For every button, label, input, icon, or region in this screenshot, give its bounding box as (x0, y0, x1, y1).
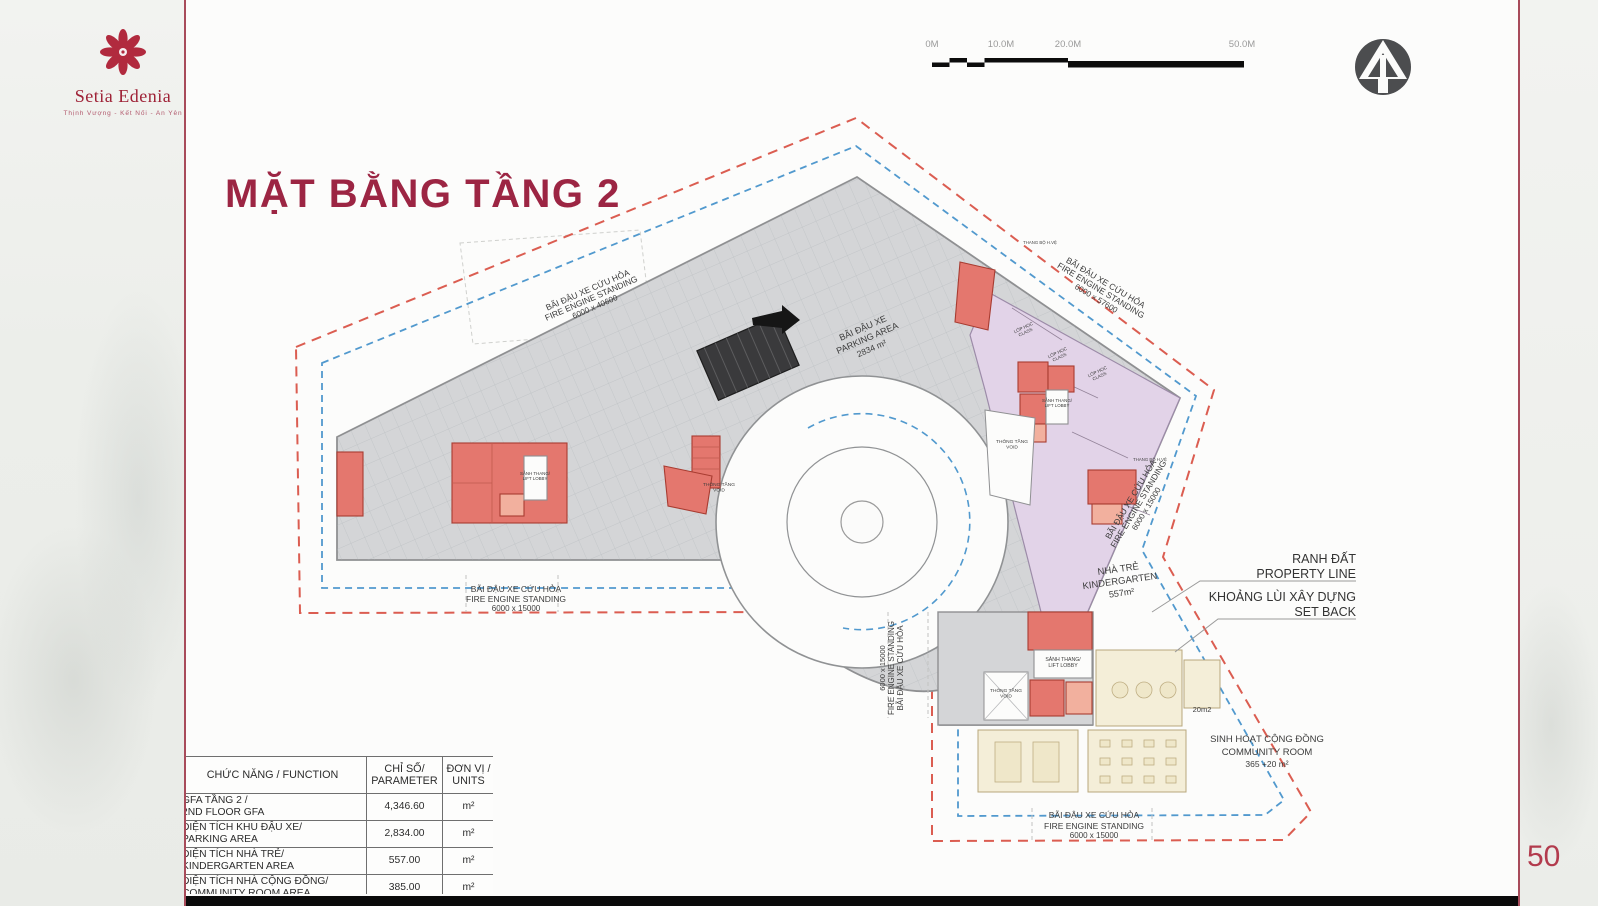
community-line2: COMMUNITY ROOM (1222, 747, 1313, 758)
stair-tag: THANG BỘ H.VỆ (1023, 240, 1057, 245)
fire-label-line2: FIRE ENGINE STANDING (887, 621, 896, 715)
community-area-value: 365 +20 m² (1245, 759, 1288, 769)
setback-vi: KHOẢNG LÙI XÂY DỰNG (1209, 589, 1356, 604)
fire-label-line1: BÃI ĐẬU XE CỨU HỎA (896, 625, 905, 711)
row-function-en: PARKING AREA (186, 834, 363, 846)
header-units-line2: UNITS (446, 775, 491, 787)
table-header-row: CHỨC NĂNG / FUNCTION CHỈ SỐ/ PARAMETER Đ… (186, 757, 493, 794)
header-parameter: CHỈ SỐ/ PARAMETER (367, 757, 443, 794)
bottom-black-bar (186, 896, 1518, 906)
north-arrow-icon (1355, 39, 1411, 95)
row-unit: m² (443, 821, 494, 848)
row-unit: m² (443, 848, 494, 875)
row-value: 4,346.60 (367, 794, 443, 821)
community-line1: SINH HOẠT CỘNG ĐỒNG (1210, 733, 1324, 745)
void-line1: THÔNG TẦNG (703, 481, 735, 488)
row-function-vi: DIỆN TÍCH KHU ĐẬU XE/ (186, 822, 363, 834)
parameters-table: CHỨC NĂNG / FUNCTION CHỈ SỐ/ PARAMETER Đ… (186, 756, 493, 894)
right-frame-border (1518, 0, 1520, 906)
page-number: 50 (1527, 840, 1560, 874)
property-line-vi: RANH ĐẤT (1292, 551, 1356, 566)
void-line1: THÔNG TẦNG (996, 438, 1028, 445)
property-line-label: RANH ĐẤT PROPERTY LINE (1256, 551, 1356, 581)
row-function-vi: DIỆN TÍCH NHÀ CỘNG ĐỒNG/ (186, 876, 363, 888)
lift-lobby-line1: SẢNH THANG/ (1045, 656, 1081, 663)
fire-label-line2: FIRE ENGINE STANDING (1056, 260, 1147, 320)
row-unit: m² (443, 794, 494, 821)
fire-label-line2: FIRE ENGINE STANDING (1044, 821, 1144, 831)
row-unit: m² (443, 875, 494, 895)
scale-tick-10: 10.0M (988, 39, 1014, 50)
row-function-vi: GFA TẦNG 2 / (186, 795, 363, 807)
fire-label-line1: BÃI ĐẬU XE CỨU HỎA (1049, 809, 1140, 820)
courtyard-center-circle (841, 501, 883, 543)
property-line-en: PROPERTY LINE (1256, 567, 1356, 581)
fire-label-dim: 6000 x 15000 (878, 645, 887, 690)
row-value: 2,834.00 (367, 821, 443, 848)
header-parameter-line2: PARAMETER (370, 775, 439, 787)
row-value: 557.00 (367, 848, 443, 875)
table-row: DIỆN TÍCH NHÀ TRẺ/ KINDERGARTEN AREA 557… (186, 848, 493, 875)
table-row: GFA TẦNG 2 / 2ND FLOOR GFA 4,346.60 m² (186, 794, 493, 821)
setback-en: SET BACK (1294, 605, 1356, 619)
lift-lobby-line2: LIFT LOBBY (523, 476, 548, 481)
row-function-en: 2ND FLOOR GFA (186, 807, 363, 819)
void-line2: VOID (1000, 694, 1012, 700)
row-function: GFA TẦNG 2 / 2ND FLOOR GFA (186, 794, 367, 821)
left-frame-border (184, 0, 186, 906)
row-function-en: KINDERGARTEN AREA (186, 861, 363, 873)
slide: Setia Edenia Thịnh Vượng - Kết Nối - An … (0, 0, 1598, 906)
fire-label-dim: 6000 x 15000 (492, 604, 541, 613)
void-line1: THÔNG TẦNG (990, 687, 1022, 694)
kindergarten-area-value: 557m² (1108, 586, 1135, 599)
row-function: DIỆN TÍCH KHU ĐẬU XE/ PARKING AREA (186, 821, 367, 848)
fire-label-line2: FIRE ENGINE STANDING (466, 594, 566, 604)
fire-label-line1: BÃI ĐẬU XE CỨU HỎA (471, 583, 562, 594)
scale-tick-20: 20.0M (1055, 39, 1081, 50)
void-line2: VOID (713, 488, 725, 494)
void-line2: VOID (1006, 445, 1018, 451)
stair-tag: THANG BỘ H.VỆ (1133, 457, 1167, 462)
scale-bar: 0M 10.0M 20.0M 50.0M (925, 39, 1255, 68)
row-function: DIỆN TÍCH NHÀ TRẺ/ KINDERGARTEN AREA (186, 848, 367, 875)
table-row: DIỆN TÍCH NHÀ CỘNG ĐỒNG/ COMMUNITY ROOM … (186, 875, 493, 895)
scale-tick-50: 50.0M (1229, 39, 1255, 50)
row-function-en: COMMUNITY ROOM AREA (186, 888, 363, 894)
fire-label-dim: 6000 x 15000 (1070, 831, 1119, 840)
header-units-line1: ĐƠN VỊ / (446, 763, 491, 775)
fire-standing-label-bottom: BÃI ĐẬU XE CỨU HỎA FIRE ENGINE STANDING … (1044, 809, 1144, 840)
fire-standing-label-topright: BÃI ĐẬU XE CỨU HỎA FIRE ENGINE STANDING … (1051, 252, 1152, 328)
fire-standing-label-bottomleft: BÃI ĐẬU XE CỨU HỎA FIRE ENGINE STANDING … (466, 583, 566, 613)
lift-lobby-line2: LIFT LOBBY (1048, 663, 1078, 669)
room-20m2-label: 20m2 (1193, 705, 1212, 714)
row-function-vi: DIỆN TÍCH NHÀ TRẺ/ (186, 849, 363, 861)
setback-label: KHOẢNG LÙI XÂY DỰNG SET BACK (1209, 589, 1357, 619)
header-parameter-line1: CHỈ SỐ/ (370, 763, 439, 775)
header-units: ĐƠN VỊ / UNITS (443, 757, 494, 794)
header-function: CHỨC NĂNG / FUNCTION (186, 757, 367, 794)
row-function: DIỆN TÍCH NHÀ CỘNG ĐỒNG/ COMMUNITY ROOM … (186, 875, 367, 895)
community-label: SINH HOẠT CỘNG ĐỒNG COMMUNITY ROOM 365 +… (1210, 733, 1324, 769)
row-value: 385.00 (367, 875, 443, 895)
lift-lobby-line2: LIFT LOBBY (1045, 403, 1070, 408)
scale-tick-0: 0M (925, 39, 938, 50)
table-row: DIỆN TÍCH KHU ĐẬU XE/ PARKING AREA 2,834… (186, 821, 493, 848)
